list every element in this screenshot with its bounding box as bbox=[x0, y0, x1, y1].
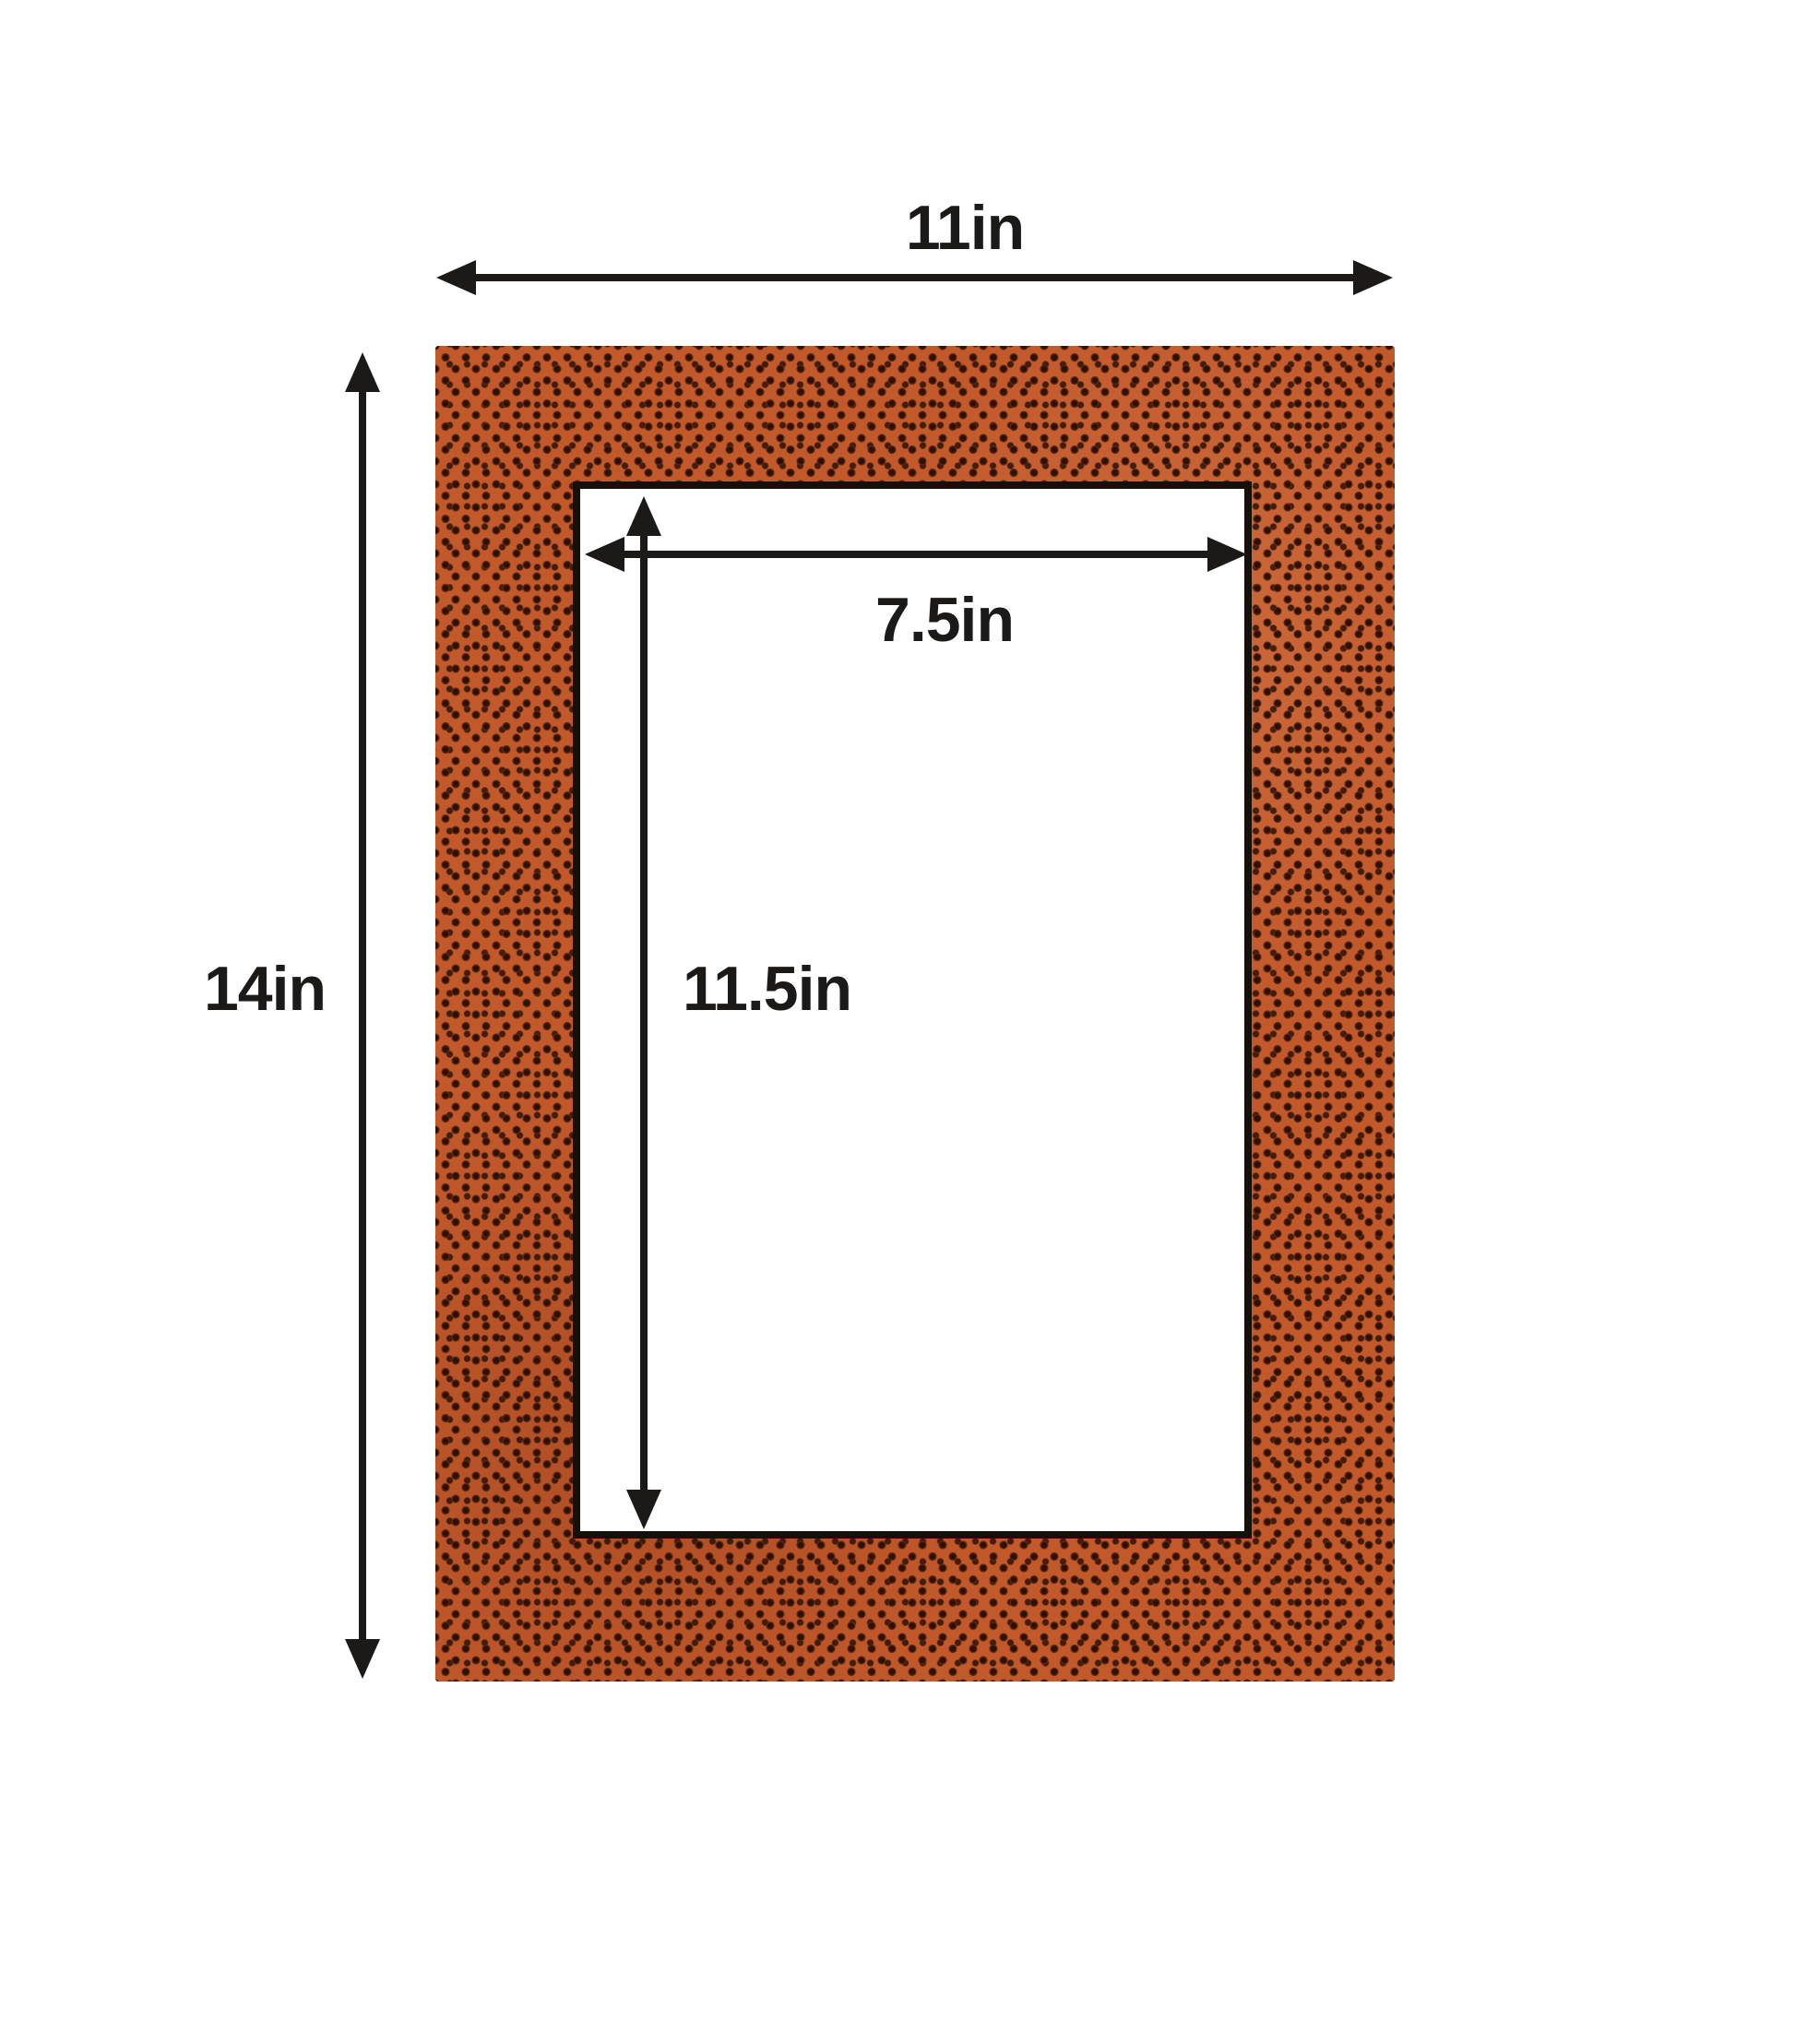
diagram-canvas: 11in 14in 7.5in 11.5in bbox=[0, 0, 1795, 2044]
opening-width-label: 7.5in bbox=[875, 588, 1014, 651]
outer-height-arrow bbox=[345, 352, 380, 1679]
arrowhead-down-icon bbox=[345, 1639, 380, 1679]
opening-height-label: 11.5in bbox=[683, 957, 851, 1020]
outer-width-arrow bbox=[436, 260, 1393, 295]
arrowhead-down-icon bbox=[626, 1490, 661, 1529]
outer-height-label: 14in bbox=[204, 957, 326, 1020]
arrow-shaft bbox=[464, 274, 1365, 281]
outer-width-label: 11in bbox=[906, 196, 1024, 259]
arrow-shaft bbox=[359, 380, 366, 1651]
arrowhead-right-icon bbox=[1353, 260, 1393, 295]
arrow-shaft bbox=[612, 551, 1219, 558]
arrowhead-right-icon bbox=[1207, 537, 1247, 572]
opening-height-arrow bbox=[626, 496, 661, 1529]
arrow-shaft bbox=[640, 524, 648, 1502]
opening-width-arrow bbox=[585, 537, 1247, 572]
